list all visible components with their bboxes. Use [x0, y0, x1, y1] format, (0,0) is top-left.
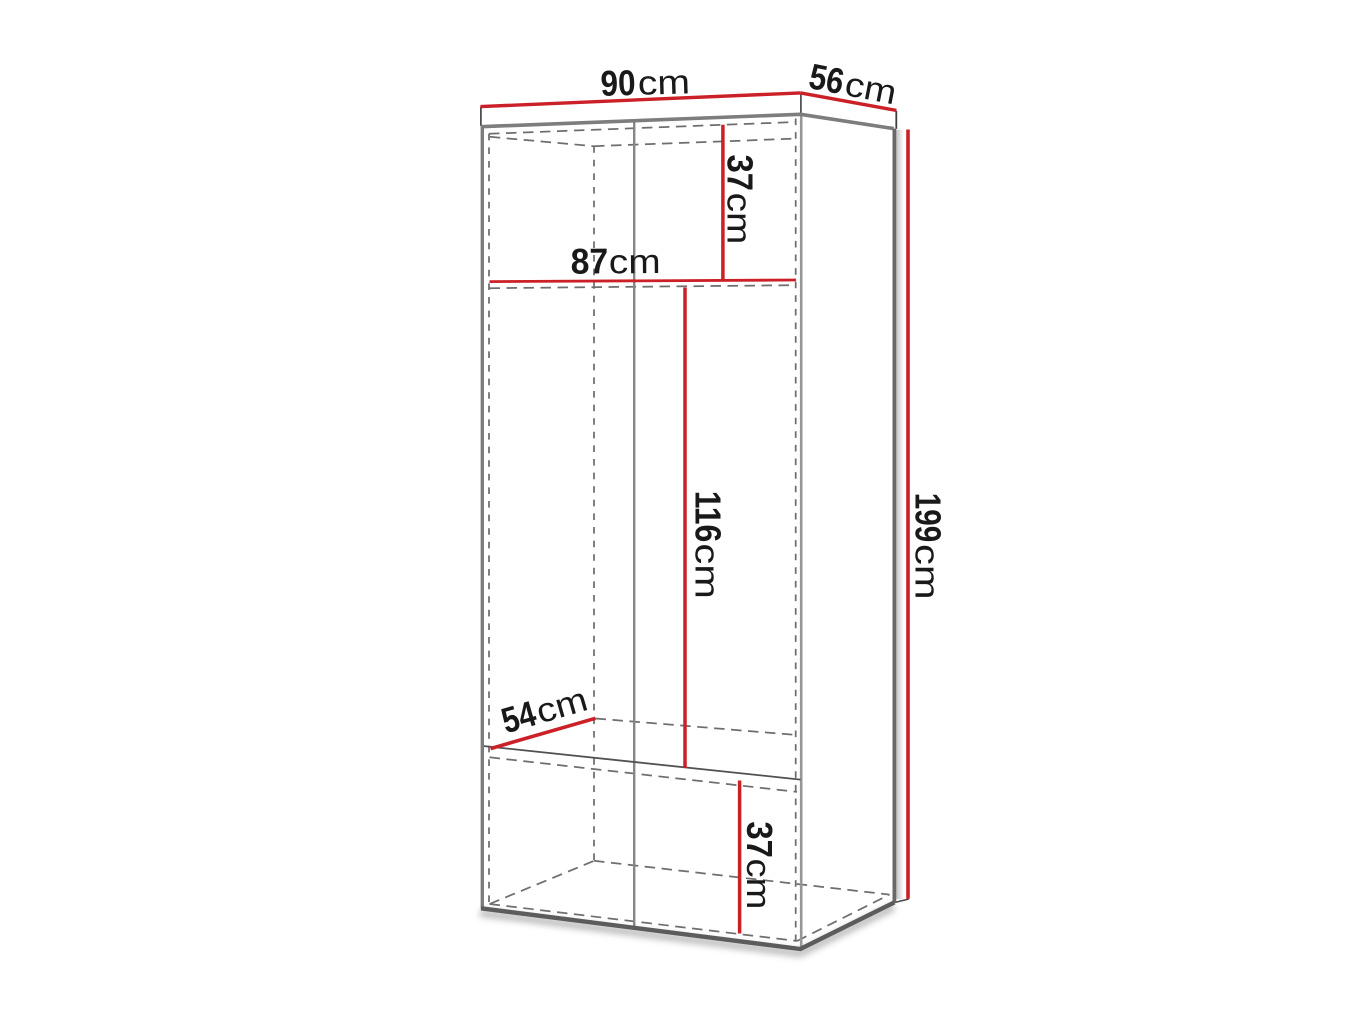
- svg-text:116cm: 116cm: [688, 491, 729, 599]
- svg-text:37cm: 37cm: [720, 155, 761, 245]
- svg-text:199cm: 199cm: [907, 493, 948, 600]
- svg-text:56cm: 56cm: [806, 55, 900, 112]
- svg-text:37cm: 37cm: [739, 821, 780, 909]
- svg-text:87cm: 87cm: [570, 240, 660, 282]
- svg-text:90cm: 90cm: [600, 60, 691, 103]
